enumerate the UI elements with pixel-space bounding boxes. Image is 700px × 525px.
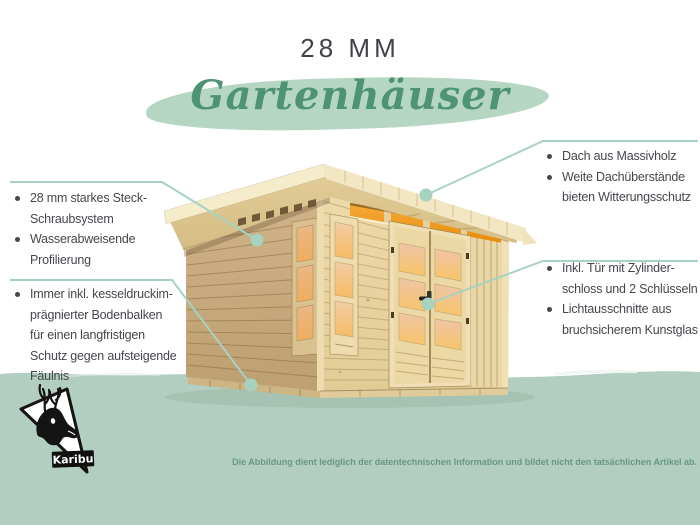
bullet-dot bbox=[547, 154, 552, 159]
callout-dot bbox=[420, 189, 433, 202]
corner-trim-left bbox=[317, 201, 324, 391]
front-window bbox=[330, 214, 358, 356]
bullet-line: Inkl. Tür mit Zylinder- bbox=[562, 258, 698, 279]
callout-dot bbox=[251, 234, 264, 247]
bullet-dot bbox=[547, 307, 552, 312]
callout-right-top: Dach aus Massivholz Weite Dachüberstände… bbox=[542, 146, 700, 208]
bullet-line: für einen langfristigen bbox=[30, 325, 177, 346]
bullet-item: Dach aus Massivholz bbox=[542, 146, 700, 167]
bullet-line: bruchsicherem Kunstglas bbox=[562, 320, 698, 341]
bullet-item: Immer inkl. kesseldruckim- prägnierter B… bbox=[10, 284, 190, 387]
bullet-dot bbox=[15, 237, 20, 242]
bullet-dot bbox=[547, 266, 552, 271]
bullet-line: Dach aus Massivholz bbox=[562, 146, 676, 167]
bullet-item: Weite Dachüberstände bieten Witterungssc… bbox=[542, 167, 700, 208]
bullet-item: Inkl. Tür mit Zylinder- schloss und 2 Sc… bbox=[542, 258, 700, 299]
callout-dot bbox=[245, 379, 258, 392]
bullet-dot bbox=[547, 175, 552, 180]
disclaimer-text: Die Abbildung dient lediglich der datent… bbox=[232, 457, 697, 467]
bullet-item: Lichtausschnitte aus bruchsicherem Kunst… bbox=[542, 299, 700, 340]
callout-dot bbox=[422, 298, 435, 311]
bullet-line: prägnierter Bodenbalken bbox=[30, 305, 177, 326]
bullet-line: Schraubsystem bbox=[30, 209, 147, 230]
brush-stroke: Gartenhäuser bbox=[164, 68, 535, 129]
bullet-dot bbox=[15, 292, 20, 297]
bullet-line: 28 mm starkes Steck- bbox=[30, 188, 147, 209]
bullet-line: Wasserabweisende bbox=[30, 229, 135, 250]
bullet-item: Wasserabweisende Profilierung bbox=[10, 229, 180, 270]
side-panel-vertical-planks bbox=[471, 237, 503, 388]
logo-label: Karibu bbox=[52, 450, 95, 467]
bullet-line: Profilierung bbox=[30, 250, 135, 271]
bullet-line: Fäulnis bbox=[30, 366, 177, 387]
bullet-line: schloss und 2 Schlüsseln bbox=[562, 279, 698, 300]
bullet-line: bieten Witterungsschutz bbox=[562, 187, 691, 208]
page-title: 28 MM bbox=[0, 33, 700, 64]
corner-trim-right bbox=[502, 241, 509, 389]
subtitle-wrap: Gartenhäuser bbox=[0, 68, 700, 129]
garden-shed bbox=[164, 164, 537, 398]
bullet-line: Immer inkl. kesseldruckim- bbox=[30, 284, 177, 305]
page-subtitle: Gartenhäuser bbox=[190, 72, 509, 119]
bullet-dot bbox=[15, 196, 20, 201]
page: Karibu 28 MM Gartenhäuser 28 mm starkes … bbox=[0, 0, 700, 525]
bullet-line: Schutz gegen aufsteigende bbox=[30, 346, 177, 367]
bullet-line: Lichtausschnitte aus bbox=[562, 299, 698, 320]
callout-right-bottom: Inkl. Tür mit Zylinder- schloss und 2 Sc… bbox=[542, 258, 700, 340]
side-window bbox=[292, 218, 318, 356]
roof-right-tip bbox=[523, 228, 537, 245]
bullet-item: 28 mm starkes Steck- Schraubsystem bbox=[10, 188, 180, 229]
callout-left-bottom: Immer inkl. kesseldruckim- prägnierter B… bbox=[10, 284, 190, 387]
callout-left-top: 28 mm starkes Steck- Schraubsystem Wasse… bbox=[10, 188, 180, 270]
bullet-line: Weite Dachüberstände bbox=[562, 167, 691, 188]
logo-brand-text: Karibu bbox=[52, 452, 93, 466]
